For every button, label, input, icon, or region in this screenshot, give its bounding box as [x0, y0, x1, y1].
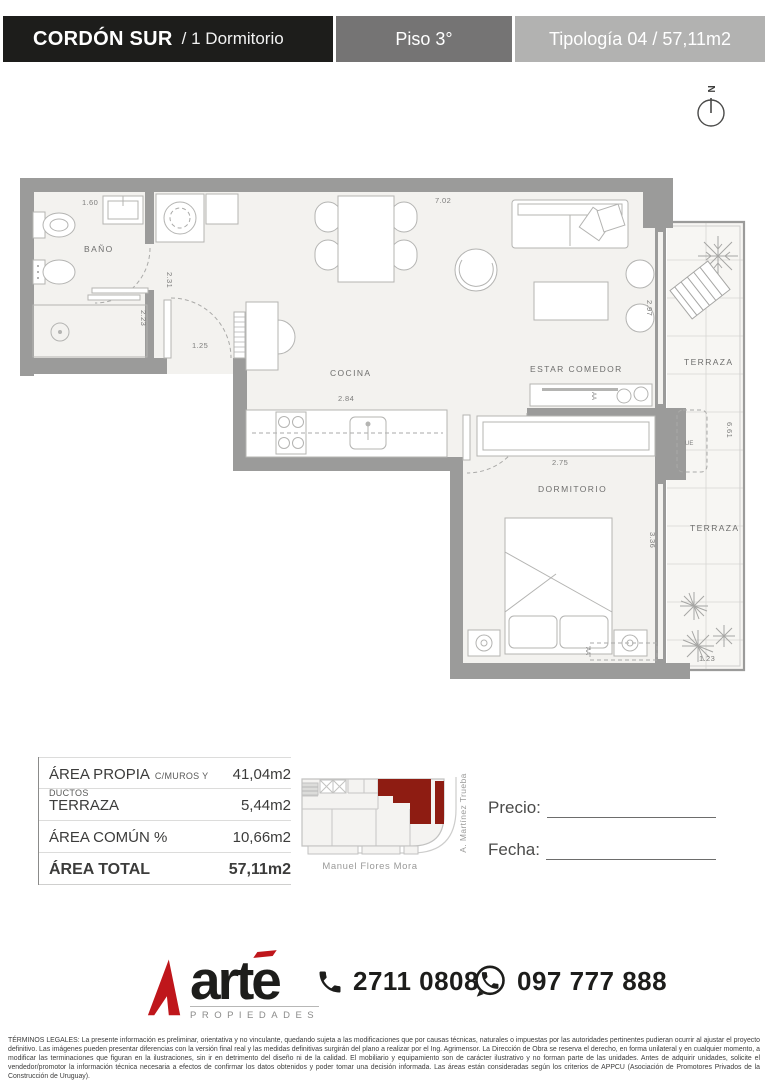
location-map: Manuel Flores Mora A. Martínez Trueba [298, 763, 476, 881]
area-label: ÁREA PROPIAC/MUROS Y DUCTOS [49, 766, 233, 800]
legal-terms: TÉRMINOS LEGALES: La presente informació… [8, 1037, 760, 1082]
plant [680, 592, 708, 620]
header-floor-bar: Piso 3° [336, 16, 512, 62]
whatsapp-contact: 097 777 888 [472, 963, 667, 999]
dim-living-length: 7.02 [435, 196, 451, 205]
label-ue: UE [685, 441, 693, 447]
dim-bath-width: 1.60 [82, 198, 98, 207]
brand-logo: arte PROPIEDADES [146, 946, 319, 1024]
pillow [509, 616, 557, 648]
street-name-right: A. Martínez Trueba [458, 773, 468, 852]
street-name-bottom: Manuel Flores Mora [322, 861, 417, 872]
sofa [512, 200, 628, 248]
brand-word: arte [190, 958, 319, 1002]
phone-icon [316, 968, 344, 996]
nightstand [468, 630, 500, 656]
area-table: ÁREA PROPIAC/MUROS Y DUCTOS 41,04m2 TERR… [38, 757, 291, 885]
phone-contact: 2711 0808 [316, 966, 479, 997]
label-terrace-lower: TERRAZA [690, 523, 739, 533]
dim-closet: 2.75 [552, 458, 568, 467]
floor-plan: BAÑO COCINA ESTAR COMEDOR DORMITORIO TER… [0, 160, 768, 720]
phone-number: 2711 0808 [353, 966, 479, 997]
armchair [455, 249, 497, 291]
unit-type: / 1 Dormitorio [182, 29, 284, 49]
date-label: Fecha: [488, 840, 540, 860]
whatsapp-icon [472, 963, 508, 999]
highlighted-unit-terrace [435, 781, 444, 824]
date-row: Fecha: [488, 840, 716, 860]
table-row: ÁREA PROPIAC/MUROS Y DUCTOS 41,04m2 [39, 757, 291, 789]
table-row: ÁREA COMÚN % 10,66m2 [39, 821, 291, 853]
area-value: 5,44m2 [241, 797, 291, 814]
table-row-total: ÁREA TOTAL 57,11m2 [39, 853, 291, 885]
date-blank-field[interactable] [546, 841, 716, 860]
label-terrace-upper: TERRAZA [684, 357, 733, 367]
area-value: 57,11m2 [229, 861, 291, 879]
dim-entry: 1.25 [192, 341, 208, 350]
label-bathroom: BAÑO [84, 244, 114, 254]
brand-mark-icon [146, 952, 184, 1024]
dim-terrace-height: 6.61 [725, 422, 734, 438]
price-date-form: Precio: Fecha: [488, 798, 716, 882]
header-typology-bar: Tipología 04 / 57,11m2 [515, 16, 765, 62]
coffee-table [534, 282, 608, 320]
area-label: TERRAZA [49, 797, 119, 814]
area-value: 41,04m2 [233, 766, 291, 783]
dining-table [338, 196, 394, 282]
header-project-bar: CORDÓN SUR / 1 Dormitorio [3, 16, 333, 62]
price-row: Precio: [488, 798, 716, 818]
floor-label: Piso 3° [395, 29, 452, 50]
plant [713, 625, 735, 647]
dim-bedroom-depth: 3.36 [648, 532, 657, 548]
dim-terrace-width: 1.23 [699, 654, 715, 663]
dim-living-width: 2.97 [645, 300, 654, 316]
dim-kitchen: 2.84 [338, 394, 354, 403]
dim-bath-lower: 2.23 [139, 310, 148, 326]
area-label: ÁREA COMÚN % [49, 829, 167, 846]
project-name: CORDÓN SUR [33, 28, 173, 51]
price-label: Precio: [488, 798, 541, 818]
price-blank-field[interactable] [547, 799, 716, 818]
label-aa-bedroom: AA [584, 647, 590, 655]
area-value: 10,66m2 [233, 829, 291, 846]
label-bedroom: DORMITORIO [538, 484, 607, 494]
whatsapp-number: 097 777 888 [517, 966, 667, 997]
area-label: ÁREA TOTAL [49, 861, 150, 879]
label-living: ESTAR COMEDOR [530, 364, 623, 374]
north-arrow-icon: N [686, 80, 736, 136]
typology-label: Tipología 04 / 57,11m2 [549, 29, 731, 50]
label-kitchen: COCINA [330, 368, 371, 378]
label-aa-living: AA [590, 392, 596, 400]
dim-bath-depth: 2.31 [165, 272, 174, 288]
north-letter: N [705, 85, 716, 92]
